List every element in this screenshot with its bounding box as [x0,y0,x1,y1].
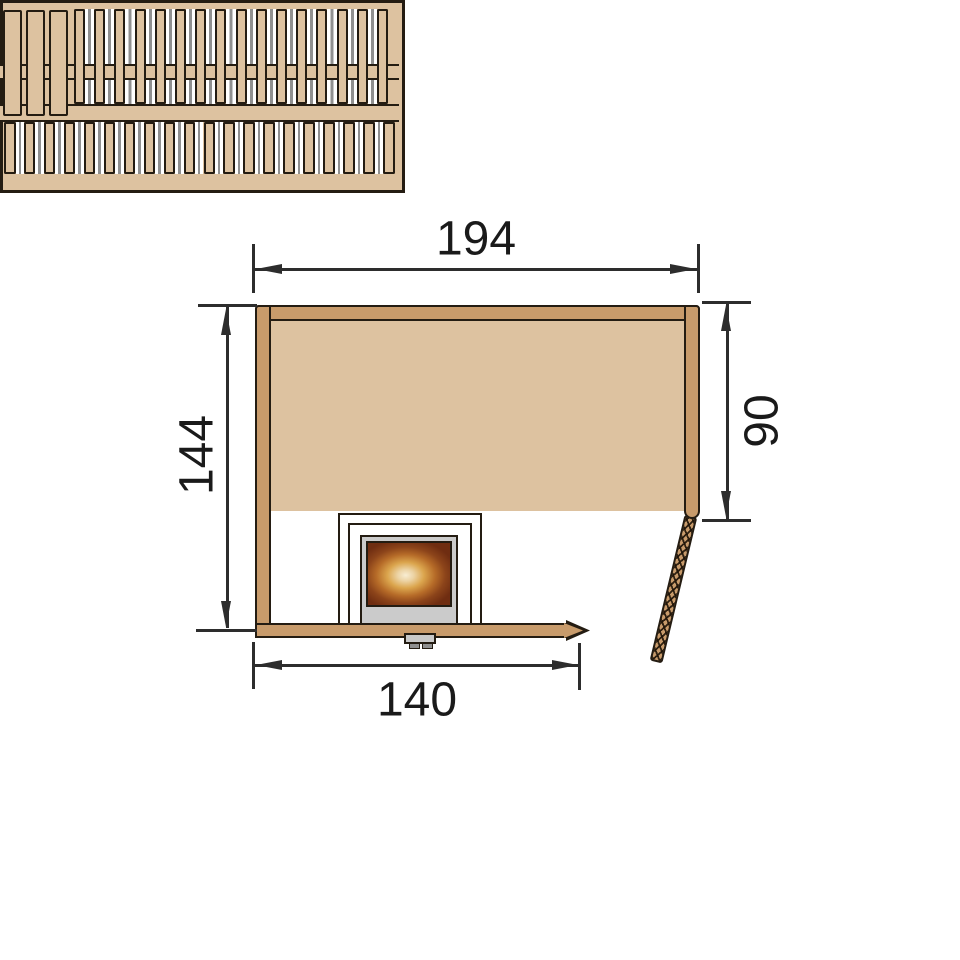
dim-value-right: 90 [735,394,790,447]
backrest-board [3,10,22,116]
dim-arrow-up [721,305,731,331]
wall-left [255,305,271,638]
heater-glow [366,541,452,607]
dim-arrow-right [670,264,696,274]
dim-arrow-right [552,660,578,670]
dim-arrow-down [721,491,731,517]
dim-tick [578,643,581,690]
dim-value-left: 144 [170,415,225,495]
dim-line [226,307,229,628]
dim-line [254,268,698,271]
dim-arrow-up [221,309,231,335]
backrest-board [49,10,68,116]
sauna-plan-diagram: 194 144 90 140 [0,0,960,960]
wall-top [255,305,700,321]
dim-value-bottom: 140 [377,673,457,728]
heater-control-foot [422,643,433,649]
backrest-board [26,10,45,116]
dim-arrow-down [221,601,231,627]
dim-arrow-left [256,660,282,670]
dim-arrow-left [256,264,282,274]
dim-tick [196,629,257,632]
bench-area [0,0,405,193]
heater-control-foot [409,643,420,649]
dim-value-top: 194 [436,212,516,267]
dim-tick [702,519,751,522]
wall-right [684,305,700,519]
sauna-interior [269,319,686,515]
dim-line [726,303,729,519]
dim-line [254,664,580,667]
